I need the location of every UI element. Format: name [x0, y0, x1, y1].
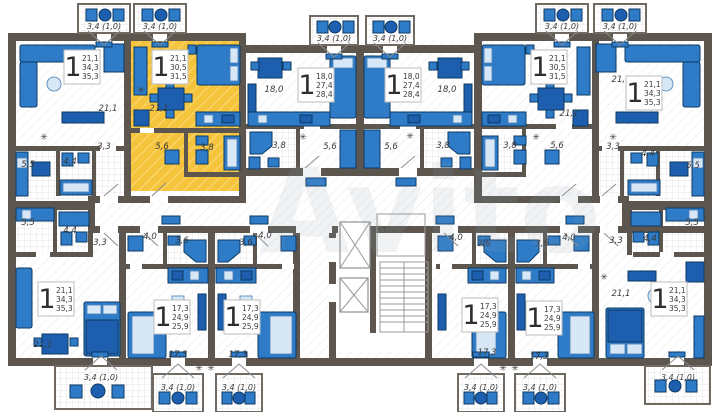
planter: [385, 21, 397, 33]
chair: [429, 62, 437, 70]
total-area: 25,9: [480, 320, 497, 329]
chair: [564, 94, 572, 102]
total-area: 28,4: [403, 90, 420, 99]
room-area-label: 17,3: [169, 350, 188, 360]
apartment-info: 1 21,1 34,3 35,3: [38, 282, 74, 316]
planter: [373, 21, 384, 33]
planter: [99, 9, 111, 21]
tv-console: [248, 84, 256, 114]
floor-plan: ✳ ✳ ✳ ✳ ✳ ✳ ✳ ✳ ✳ ✳ ✳ 21,1 3,3 4,4 5,5 2…: [0, 0, 720, 412]
vent-icon: ✳: [406, 132, 414, 142]
planter: [112, 385, 124, 398]
planter: [70, 385, 82, 398]
room-area-label: 21,1: [150, 104, 169, 114]
sofa-bed-inner: [270, 316, 292, 354]
usable-area: 34,3: [644, 89, 661, 98]
rooms-count: 1: [224, 302, 241, 333]
chair: [70, 338, 78, 346]
rooms-count: 1: [154, 302, 171, 333]
pillow: [230, 48, 238, 63]
washing-machine: [128, 236, 143, 251]
usable-area: 34,3: [82, 63, 99, 72]
balcony-door-gap: [153, 33, 167, 41]
elevator-door-gap: [329, 284, 336, 302]
sofa: [683, 62, 700, 107]
kitchen-sink: [508, 115, 517, 123]
usable-area: 24,9: [242, 313, 259, 322]
planter: [629, 9, 640, 21]
bathtub-inner: [631, 183, 657, 192]
apartment-info: 1 21,1 34,3 35,3: [651, 282, 687, 316]
room-area-label: 4,4: [643, 234, 657, 244]
living-area: 17,3: [172, 304, 189, 313]
total-area: 25,9: [544, 323, 561, 332]
vent-icon: ✳: [600, 273, 608, 283]
room-door-gap: [36, 252, 50, 257]
planter: [399, 21, 410, 33]
apartment-info: 1 17,3 24,9 25,9: [526, 301, 562, 335]
planter: [155, 9, 167, 21]
watermark: Avito: [259, 142, 601, 280]
planter: [329, 21, 341, 33]
room-area-label: 5,5: [686, 161, 700, 171]
room-area-label: 18,0: [438, 85, 457, 95]
room-area-label: 4,4: [63, 157, 77, 167]
living-area: 17,3: [480, 302, 497, 311]
rooms-count: 1: [298, 70, 315, 101]
usable-area: 34,3: [669, 295, 686, 304]
room-area-label: 3,3: [97, 142, 111, 152]
vent-icon: ✳: [195, 364, 203, 374]
apartment-info: 1 21,1 30,5 31,5: [531, 50, 567, 84]
rooms-count: 1: [526, 303, 543, 334]
total-area: 35,3: [56, 304, 73, 313]
room-area-label: 5,5: [685, 218, 699, 228]
living-area: 21,1: [669, 286, 686, 295]
planter: [113, 9, 124, 21]
bathtub-inner: [227, 139, 237, 167]
rooms-count: 1: [626, 78, 643, 109]
room-area-label: 21,1: [99, 104, 118, 114]
room-area-label: 17,3: [478, 348, 497, 358]
room-area-label: 4,0: [143, 232, 157, 242]
wardrobe: [694, 316, 704, 358]
chair: [461, 62, 469, 70]
rooms-count: 1: [531, 52, 548, 83]
balcony-area-label: 3,4 (1,0): [603, 22, 637, 31]
planter: [222, 392, 232, 404]
vent-icon: ✳: [511, 364, 519, 374]
usable-area: 27,4: [403, 81, 420, 90]
wardrobe: [596, 44, 616, 72]
entrance-door-gap: [600, 196, 618, 203]
bathtub: [59, 212, 89, 226]
apartment-info: 1 17,3 24,9 25,9: [224, 300, 260, 334]
balcony-area-label: 3,4 (1,0): [317, 34, 351, 43]
sofa-bed-inner: [570, 316, 590, 354]
total-area: 31,5: [170, 72, 187, 81]
kitchen-sink: [453, 115, 462, 123]
planter: [91, 384, 105, 398]
planter: [343, 21, 354, 33]
kitchen-sink: [224, 271, 233, 280]
vent-icon: ✳: [137, 86, 145, 96]
room-area-label: 3,8: [200, 143, 214, 153]
floor-plan-svg: ✳ ✳ ✳ ✳ ✳ ✳ ✳ ✳ ✳ ✳ ✳ 21,1 3,3 4,4 5,5 2…: [0, 0, 720, 412]
washing-machine: [165, 150, 179, 164]
entrance-door-gap: [100, 196, 118, 203]
balcony-door-gap: [613, 33, 627, 41]
room-area-label: 4,4: [63, 226, 77, 236]
total-area: 35,3: [669, 304, 686, 313]
total-area: 28,4: [316, 90, 333, 99]
room-area-label: 3,3: [606, 142, 620, 152]
living-area: 17,3: [544, 305, 561, 314]
tv-console: [616, 112, 658, 123]
pillow: [103, 305, 117, 314]
usable-area: 24,9: [172, 313, 189, 322]
pillow: [484, 48, 492, 63]
total-area: 25,9: [242, 322, 259, 331]
planter: [142, 9, 153, 21]
living-area: 21,1: [82, 54, 99, 63]
kitchen-sink: [190, 271, 199, 280]
rooms-count: 1: [38, 284, 55, 315]
pillow: [610, 344, 625, 354]
living-area: 21,1: [56, 286, 73, 295]
stove: [172, 271, 183, 280]
vent-icon: ✳: [499, 364, 507, 374]
stove: [222, 115, 234, 123]
stove: [488, 115, 500, 123]
balcony-area-label: 3,4 (1,0): [661, 373, 695, 382]
blanket: [86, 320, 118, 354]
kitchen-sink: [258, 115, 267, 123]
chair: [283, 62, 291, 70]
balcony-area-label: 3,4 (1,0): [84, 373, 118, 382]
usable-area: 27,4: [316, 81, 333, 90]
bench: [162, 216, 180, 224]
sofa: [20, 62, 37, 107]
planter: [544, 9, 555, 21]
dining-table: [258, 58, 282, 78]
balcony-area-label: 3,4 (1,0): [87, 22, 121, 31]
usable-area: 30,5: [549, 63, 566, 72]
wardrobe: [104, 44, 124, 72]
rooms-count: 1: [385, 70, 402, 101]
planter: [571, 9, 582, 21]
usable-area: 24,9: [480, 311, 497, 320]
planter: [159, 392, 170, 404]
living-area: 18,0: [316, 72, 333, 81]
tv-console: [628, 271, 656, 281]
room-door-gap: [130, 264, 142, 269]
pillow: [230, 66, 238, 81]
usable-area: 30,5: [170, 63, 187, 72]
chair: [251, 62, 259, 70]
usable-area: 24,9: [544, 314, 561, 323]
stove: [300, 115, 312, 123]
sink: [76, 232, 87, 242]
balcony-area-label: 3,4 (1,0): [143, 22, 177, 31]
balcony-area-label: 3,4 (1,0): [523, 383, 557, 392]
room-area-label: 3,6: [239, 238, 253, 248]
fridge: [134, 110, 149, 126]
planter: [317, 21, 328, 33]
balcony-door-gap: [97, 33, 111, 41]
total-area: 25,9: [172, 322, 189, 331]
entrance-door-gap: [150, 196, 168, 203]
room-area-label: 5,5: [21, 160, 35, 170]
rooms-count: 1: [64, 52, 81, 83]
apartment-info: 1 17,3 24,9 25,9: [154, 300, 190, 334]
planter: [245, 392, 255, 404]
total-area: 31,5: [549, 72, 566, 81]
room-area-label: 5,5: [21, 218, 35, 228]
vent-icon: ✳: [40, 133, 48, 143]
total-area: 35,3: [82, 72, 99, 81]
usable-area: 34,3: [56, 295, 73, 304]
sink: [78, 153, 89, 163]
planter: [602, 9, 613, 21]
balcony-area-label: 3,4 (1,0): [373, 34, 407, 43]
room-door-gap: [140, 128, 154, 133]
living-area: 21,1: [644, 80, 661, 89]
living-area: 17,3: [242, 304, 259, 313]
room-area-label: 21,1: [34, 340, 53, 350]
dining-table: [438, 58, 462, 78]
entrance-door-gap: [100, 226, 118, 233]
living-area: 21,1: [170, 54, 187, 63]
planter: [186, 392, 197, 404]
living-area: 18,0: [403, 72, 420, 81]
balcony-door-gap: [327, 45, 341, 53]
balcony-door-gap: [474, 358, 488, 366]
planter: [86, 9, 97, 21]
blanket: [608, 310, 642, 342]
dining-table: [686, 262, 704, 282]
room-area-label: 3,3: [609, 236, 623, 246]
planter: [615, 9, 627, 21]
apartment-info: 1 21,1 30,5 31,5: [152, 50, 188, 84]
planter: [172, 392, 184, 404]
room-area-label: 4,4: [641, 149, 655, 159]
rooms-count: 1: [152, 52, 169, 83]
room-area-label: 21,1: [612, 289, 631, 299]
bathtub: [631, 212, 661, 226]
chair: [150, 94, 158, 102]
balcony-door-gap: [383, 45, 397, 53]
chair: [530, 94, 538, 102]
apartment-info: 1 21,1 34,3 35,3: [626, 76, 662, 110]
planter: [523, 392, 534, 404]
pillow: [484, 66, 492, 81]
planter: [557, 9, 569, 21]
balcony-area-label: 3,4 (1,0): [545, 22, 579, 31]
total-area: 35,3: [644, 98, 661, 107]
apartment-info: 1 17,3 24,9 25,9: [462, 298, 498, 332]
balcony-area-label: 3,4 (1,0): [161, 383, 195, 392]
room-door-gap: [556, 124, 572, 129]
planter: [475, 392, 487, 404]
room-area-label: 3,3: [93, 238, 107, 248]
tv-console: [517, 294, 525, 330]
tv-console: [464, 84, 472, 114]
stove: [408, 115, 420, 123]
sofa: [625, 45, 700, 62]
stove: [241, 271, 252, 280]
planter: [548, 392, 559, 404]
room-area-label: 17,3: [530, 352, 549, 362]
sofa: [16, 268, 32, 328]
bathtub-inner: [63, 183, 89, 192]
dining-table: [538, 88, 564, 110]
nightstand: [188, 45, 196, 54]
kitchen-sink: [204, 115, 213, 123]
balcony-area-label: 3,4 (1,0): [464, 383, 498, 392]
planter: [169, 9, 180, 21]
planter: [487, 392, 497, 404]
apartment-info: 1 18,0 27,4 28,4: [385, 68, 421, 102]
chair: [184, 94, 192, 102]
apartment-info: 1 18,0 27,4 28,4: [298, 68, 334, 102]
tv-console: [438, 294, 446, 330]
room-area-label: 21,1: [560, 109, 579, 119]
balcony-door-gap: [555, 33, 569, 41]
room-area-label: 5,6: [155, 142, 169, 152]
apartment-info: 1 21,1 34,3 35,3: [64, 50, 100, 84]
chair: [546, 110, 554, 118]
sofa-bed-inner: [132, 316, 154, 354]
pillow: [627, 344, 642, 354]
room-area-label: 3,6: [175, 236, 189, 246]
planter: [535, 392, 547, 404]
living-area: 21,1: [549, 54, 566, 63]
rooms-count: 1: [651, 284, 668, 315]
entrance-door-gap: [600, 226, 618, 233]
tv-console: [198, 294, 206, 330]
balcony-area-label: 3,4 (1,0): [222, 383, 256, 392]
planter: [233, 392, 245, 404]
vent-icon: ✳: [207, 364, 215, 374]
plant: [47, 77, 61, 91]
room-area-label: 18,0: [265, 85, 284, 95]
pillow: [87, 305, 101, 314]
planter: [464, 392, 474, 404]
wardrobe: [577, 47, 590, 95]
room-area-label: 17,3: [229, 350, 248, 360]
room-door-gap: [660, 252, 674, 257]
rooms-count: 1: [462, 300, 479, 331]
